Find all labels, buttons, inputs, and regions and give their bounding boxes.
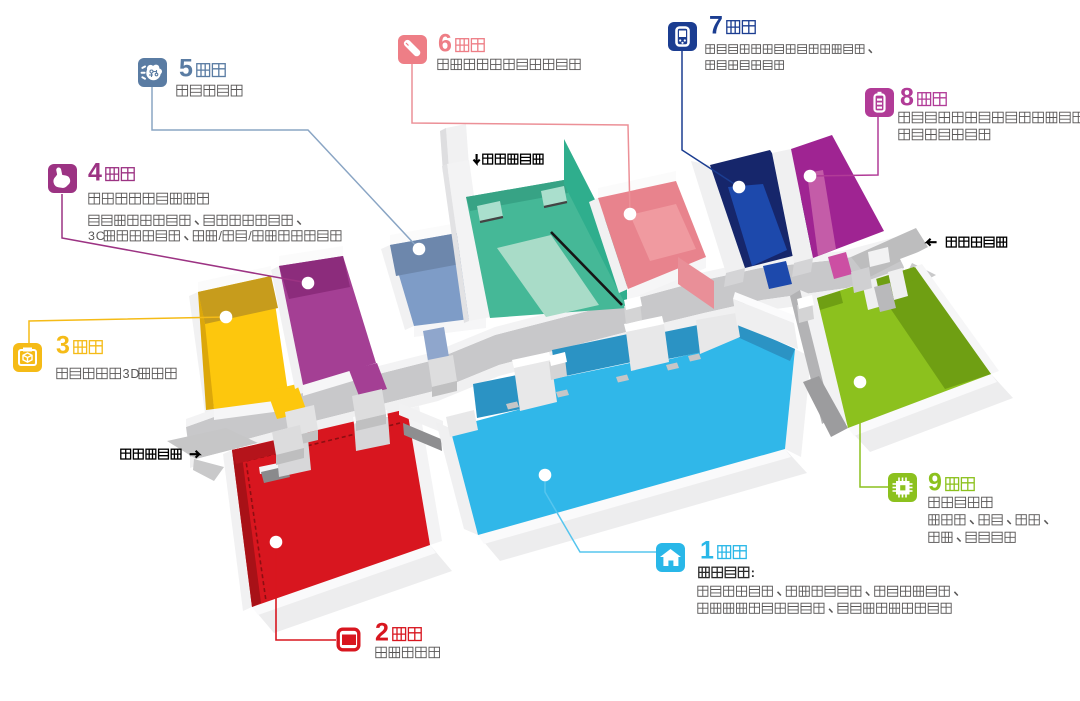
svg-text:1: 1 bbox=[700, 537, 714, 565]
svg-text:8: 8 bbox=[900, 84, 914, 112]
svg-text:3: 3 bbox=[88, 229, 95, 243]
svg-text:6: 6 bbox=[438, 30, 452, 58]
svg-text:7: 7 bbox=[709, 12, 723, 40]
svg-text:9: 9 bbox=[928, 469, 942, 497]
svg-text:/: / bbox=[219, 229, 223, 243]
svg-text:5: 5 bbox=[179, 55, 193, 83]
svg-text::: : bbox=[751, 566, 755, 580]
svg-text:/: / bbox=[248, 229, 252, 243]
svg-text:4: 4 bbox=[88, 159, 102, 187]
svg-text:3: 3 bbox=[56, 332, 70, 360]
svg-text:C: C bbox=[96, 229, 105, 243]
svg-text:D: D bbox=[130, 367, 139, 381]
svg-text:2: 2 bbox=[375, 619, 389, 647]
svg-text:3: 3 bbox=[123, 367, 130, 381]
